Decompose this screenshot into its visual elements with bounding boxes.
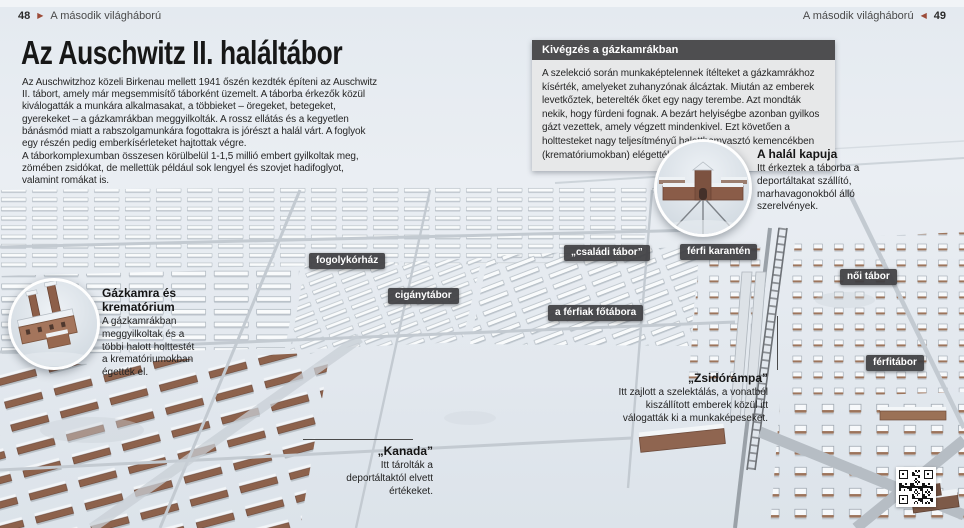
running-head-right: A második világháború ◀ 49 <box>803 10 946 22</box>
qr-finder-bottom-left <box>899 495 908 504</box>
callout-death-gate-body: Itt érkeztek a táborba a deportáltakat s… <box>757 163 885 214</box>
callout-jew-ramp-title: „Zsidórámpa” <box>600 371 768 385</box>
map-label-family-camp: „családi tábor” <box>564 245 650 261</box>
callout-gas-chamber: Gázkamra és krematórium A gázkamrákban m… <box>102 286 202 380</box>
map-label-prisoner-hospital: fogolykórház <box>309 253 385 269</box>
map-label-mens-main-camp: a férfiak főtábora <box>548 305 643 321</box>
callout-gas-chamber-body: A gázkamrákban meggyilkoltak és a többi … <box>102 316 202 380</box>
ramp-pointer-line <box>777 316 778 370</box>
intro-paragraph-1: Az Auschwitzhoz közeli Birkenau mellett … <box>22 77 378 150</box>
crematorium-illustration <box>11 281 97 367</box>
infobox-title: Kivégzés a gázkamrákban <box>532 40 835 60</box>
triangle-right-icon: ▶ <box>37 12 43 20</box>
qr-finder-top-right <box>924 470 933 479</box>
book-spread: 48 ▶ A második világháború A második vil… <box>0 0 964 528</box>
callout-jew-ramp-body: Itt zajlott a szelektálás, a vonatból ki… <box>600 387 768 425</box>
gas-chamber-inset-photo <box>8 278 100 370</box>
callout-gas-chamber-title: Gázkamra és krematórium <box>102 286 202 314</box>
callout-death-gate: A halál kapuja Itt érkeztek a táborba a … <box>757 147 885 214</box>
qr-code-modules <box>899 470 933 504</box>
page-number-right: 49 <box>934 10 946 22</box>
callout-kanada-title: „Kanada” <box>321 444 433 458</box>
map-label-mens-camp: férfitábor <box>866 355 924 371</box>
intro-paragraph-2: A táborkomplexumban összesen körülbelül … <box>22 151 378 188</box>
kanada-pointer-line <box>303 439 413 440</box>
callout-kanada: „Kanada” Itt tárolták a deportáltaktól e… <box>321 444 433 498</box>
qr-finder-top-left <box>899 470 908 479</box>
warehouse-building <box>880 407 946 420</box>
map-label-womens-camp: női tábor <box>840 269 897 285</box>
death-gate-illustration <box>657 142 749 234</box>
running-head-left: 48 ▶ A második világháború <box>18 10 161 22</box>
death-gate-inset-photo <box>654 139 752 237</box>
chapter-title-left: A második világháború <box>50 10 161 22</box>
map-label-gypsy-camp: cigánytábor <box>388 288 459 304</box>
callout-death-gate-title: A halál kapuja <box>757 147 885 161</box>
page-title: Az Auschwitz II. haláltábor <box>21 34 342 72</box>
page-number-left: 48 <box>18 10 30 22</box>
map-label-male-quarantine: férfi karantén <box>680 244 757 260</box>
chapter-title-right: A második világháború <box>803 10 914 22</box>
qr-code <box>896 467 936 507</box>
callout-jew-ramp: „Zsidórámpa” Itt zajlott a szelektálás, … <box>600 371 768 425</box>
triangle-left-icon: ◀ <box>921 12 927 20</box>
callout-kanada-body: Itt tárolták a deportáltaktól elvett ért… <box>321 460 433 498</box>
